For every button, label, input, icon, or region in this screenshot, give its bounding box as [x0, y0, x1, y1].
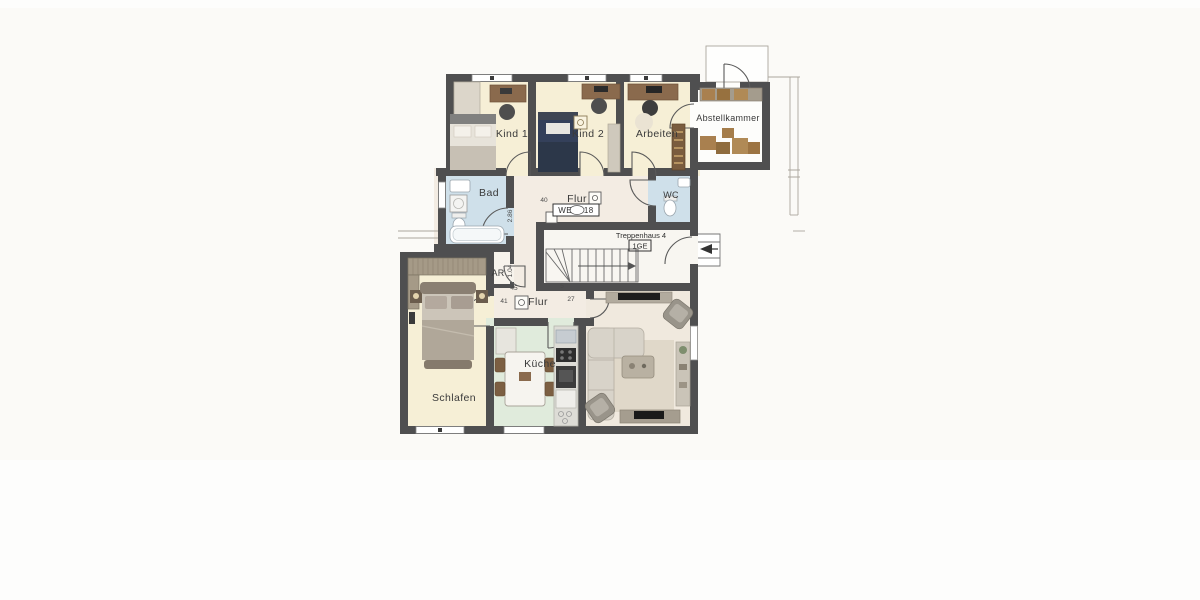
- kitchen-sink: [556, 330, 576, 343]
- box: [748, 142, 760, 154]
- chair: [499, 104, 515, 120]
- unit-badge-label: WE 18: [558, 206, 594, 215]
- room-label-flur-top: Flur: [567, 193, 587, 205]
- smoke-detector-icon: [589, 192, 601, 204]
- tall-cabinet: [496, 328, 516, 354]
- unit-badge: WE 18: [553, 204, 599, 216]
- room-label-kind2: Kind 2: [572, 128, 604, 140]
- bed-headboard: [538, 112, 578, 120]
- pillow: [451, 296, 473, 309]
- coffee-table: [622, 356, 654, 378]
- wardrobe: [408, 258, 486, 275]
- sink: [678, 178, 690, 187]
- table-decor: [519, 372, 531, 381]
- box: [722, 128, 734, 138]
- pillow: [425, 296, 447, 309]
- smoke-detector-icon: [515, 296, 528, 309]
- dim-top-width: 40: [540, 197, 548, 204]
- monitor: [646, 86, 662, 93]
- room-label-kind1: Kind 1: [496, 128, 528, 140]
- dim-ar-width: 1.04: [507, 264, 514, 277]
- bed-headboard: [420, 282, 476, 294]
- dim-corridor-depth: 2.86: [507, 209, 514, 222]
- bathtub-inner: [453, 229, 501, 241]
- bed-blanket: [450, 146, 496, 170]
- chair: [495, 382, 505, 396]
- box: [702, 89, 715, 100]
- box: [732, 138, 748, 154]
- pillow: [454, 126, 471, 137]
- monitor: [594, 86, 608, 92]
- washing-machine: [450, 195, 467, 212]
- chair: [495, 358, 505, 372]
- lamp: [413, 293, 419, 299]
- room-label-arbeiten: Arbeiten: [636, 128, 678, 140]
- plant: [679, 346, 687, 354]
- pillow: [475, 126, 491, 137]
- desk-items: [500, 88, 512, 94]
- bed-blanket: [538, 142, 578, 172]
- dim-small-b: 41: [500, 298, 508, 305]
- chair: [591, 98, 607, 114]
- room-label-bad: Bad: [479, 187, 499, 199]
- room-label-abstellkammer: Abstellkammer: [696, 113, 759, 123]
- box: [700, 136, 716, 150]
- floorplan-image: WE 18 1GE 40 2.86 1.04 45 41 27 5 Kind 1…: [0, 0, 1200, 600]
- box: [716, 142, 730, 154]
- sink: [450, 180, 470, 192]
- room-label-wc: WC: [663, 190, 679, 200]
- room-label-flur-bottom: Flur: [528, 296, 548, 308]
- toilet: [664, 200, 676, 216]
- dim-small-a: 45: [510, 285, 518, 292]
- dim-small-d: 5: [560, 283, 564, 290]
- bed-bench: [424, 360, 472, 369]
- entrance-landing: [698, 234, 720, 266]
- tv: [618, 293, 660, 300]
- wardrobe: [608, 124, 620, 172]
- bed-headboard: [450, 114, 496, 124]
- bed-blanket: [422, 320, 474, 360]
- sofa: [588, 328, 644, 358]
- dim-small-c: 27: [567, 296, 575, 303]
- box: [734, 89, 748, 100]
- lamp: [479, 293, 485, 299]
- box: [717, 89, 730, 100]
- tv: [634, 411, 664, 419]
- stove: [556, 348, 576, 362]
- room-label-ar: AR: [491, 268, 504, 278]
- wall-tv: [409, 312, 415, 324]
- floor-badge-label: 1GE: [632, 242, 647, 251]
- pillow: [546, 123, 570, 134]
- fridge: [556, 390, 576, 408]
- chair: [545, 382, 555, 396]
- oven-door: [559, 370, 573, 382]
- wardrobe: [454, 82, 480, 118]
- toilet-tank: [452, 213, 466, 218]
- floorplan-svg: WE 18 1GE 40 2.86 1.04 45 41 27 5 Kind 1…: [0, 0, 1200, 600]
- room-label-kueche: Küche: [524, 358, 556, 370]
- room-label-schlafen: Schlafen: [432, 392, 476, 404]
- room-label-treppenhaus: Treppenhaus 4: [616, 231, 666, 240]
